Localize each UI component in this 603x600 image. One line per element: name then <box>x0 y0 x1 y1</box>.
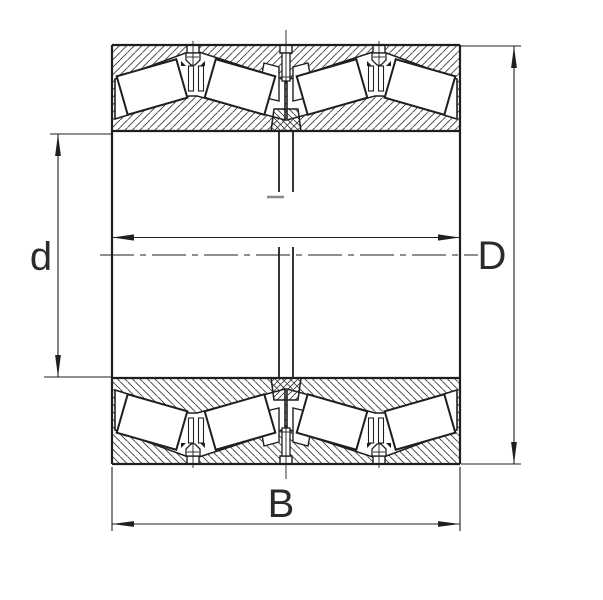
cage-section <box>379 66 384 91</box>
arrowhead-left <box>112 234 134 240</box>
arrowhead-down <box>55 355 61 377</box>
cage-section <box>369 66 374 91</box>
inner-width-arrow <box>112 234 460 240</box>
bearing-drawing-canvas: d D B <box>0 0 603 600</box>
bearing-section-drawing: d D B <box>0 0 603 600</box>
dimension-d: d <box>30 134 111 377</box>
inner-ring-spacer <box>271 109 301 131</box>
bearing-half-mirrored <box>112 378 460 479</box>
bore-region <box>100 131 478 378</box>
label-bore-diameter: d <box>30 235 52 279</box>
arrowhead-right <box>438 521 460 527</box>
label-width: B <box>268 482 295 526</box>
arrowhead-up <box>511 46 517 68</box>
arrowhead-right <box>438 234 460 240</box>
arrowhead-up <box>55 134 61 156</box>
bearing-half-section <box>112 30 460 131</box>
arrowhead-down <box>511 442 517 464</box>
cage-section <box>199 66 204 91</box>
cage-section <box>189 66 194 91</box>
arrowhead-left <box>112 521 134 527</box>
label-outer-diameter: D <box>478 234 507 278</box>
